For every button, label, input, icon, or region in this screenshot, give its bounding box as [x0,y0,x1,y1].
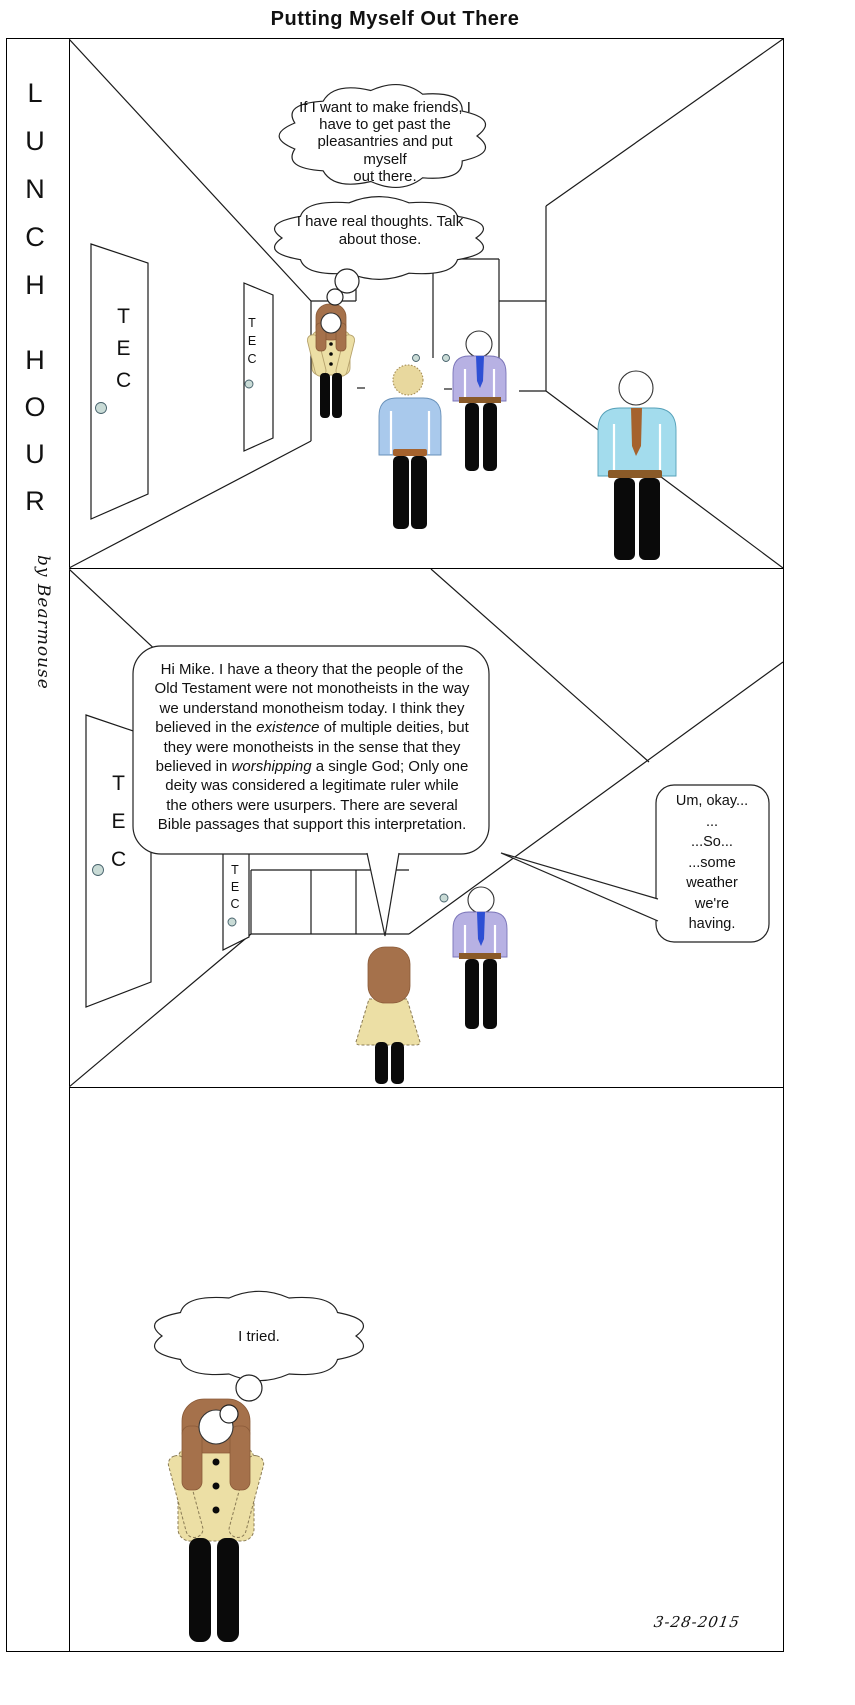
comic-panel-3: I tried. 3-28-2015 [69,1088,783,1651]
thought-text-3: I tried. [189,1328,329,1345]
doorknob [413,355,420,362]
face [619,371,653,405]
big-man-figure [598,371,676,560]
blond-man-figure [379,365,441,529]
door-sign: TEC [116,301,131,397]
comic-title: Putting Myself Out There [0,8,790,31]
speech-text: Hi Mike. I have a theory that the people… [142,660,482,835]
curly-hair [393,365,423,395]
thought-text-1: If I want to make friends, I have to get… [294,99,476,185]
reply-text: Um, okay... ... ...So... ...some weather… [657,791,767,935]
belt [393,449,427,456]
woman-figure [306,304,355,418]
face [468,887,494,913]
purple-shirt-man-figure [453,887,507,1029]
legs [189,1538,211,1642]
doorknob [245,380,253,388]
reply-tail [501,853,658,921]
doorknob [93,865,104,876]
series-title-bottom: HOUR [24,337,46,525]
door-sign: TEC [111,765,126,879]
doorknob [96,403,107,414]
date-signature: 3-28-2015 [653,1613,741,1631]
thought-text-2: I have real thoughts. Talk about those. [281,213,479,249]
purple-shirt-man-figure [453,331,506,471]
title-column: LUNCH HOUR by Bearmouse [7,39,70,1651]
panel-3-art [69,1088,783,1651]
comic-panel-2: TEC TEC Hi Mike. I have a theory that th… [69,569,783,1088]
author-byline: by Bearmouse [33,555,53,690]
legs [320,373,330,418]
doorknob [228,918,236,926]
face [466,331,492,357]
thought-trail [236,1375,262,1401]
belt [459,397,501,403]
doorknob [440,894,448,902]
door-sign: TEC [247,314,257,368]
hair [368,947,410,1003]
comic-frame: LUNCH HOUR by Bearmouse [6,38,784,1652]
comic-page: Putting Myself Out There LUNCH HOUR by B… [0,0,855,1705]
doorknob [443,355,450,362]
belt [459,953,501,959]
belt [608,470,662,478]
face [321,313,341,333]
woman-figure-back [356,947,420,1084]
series-title-top: LUNCH [24,69,46,309]
thought-bubble [155,1291,364,1423]
woman-figure-large [167,1399,266,1642]
speech-tail [367,853,399,936]
comic-panel-1: TEC TEC If I want to make friends, I hav… [69,39,783,569]
door-sign: TEC [230,862,240,913]
